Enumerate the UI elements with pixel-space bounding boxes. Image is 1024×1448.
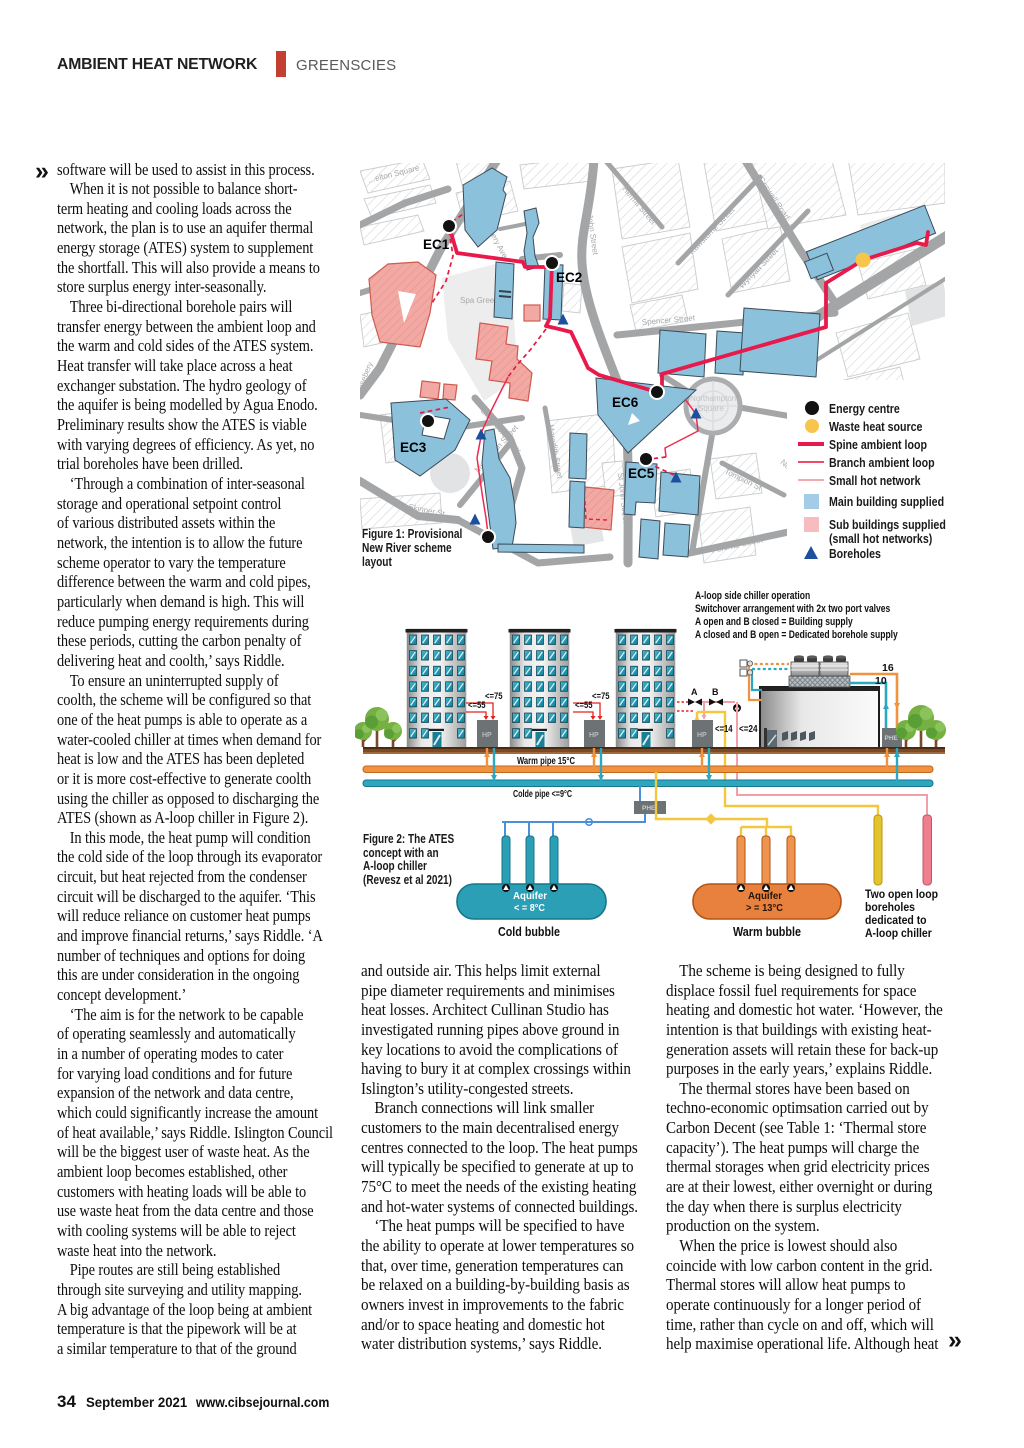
svg-text:> = 13°C: > = 13°C xyxy=(746,903,783,914)
svg-text:PHE: PHE xyxy=(642,805,656,812)
svg-text:EC3: EC3 xyxy=(400,440,427,455)
svg-text:Northampton: Northampton xyxy=(690,394,736,403)
svg-text:Warm pipe 15°C: Warm pipe 15°C xyxy=(517,755,575,767)
svg-text:10: 10 xyxy=(875,675,887,687)
svg-text:B: B xyxy=(712,687,719,697)
svg-text:<=14: <=14 xyxy=(715,723,733,735)
svg-text:< = 8°C: < = 8°C xyxy=(514,903,545,914)
svg-text:HP: HP xyxy=(482,732,492,739)
svg-text:PHE: PHE xyxy=(885,735,899,742)
svg-text:HP: HP xyxy=(697,732,707,739)
svg-text:<=75: <=75 xyxy=(592,691,610,702)
svg-text:EC6: EC6 xyxy=(612,395,639,410)
svg-text:16: 16 xyxy=(882,662,894,674)
svg-text:Colde pipe <=9°C: Colde pipe <=9°C xyxy=(513,788,572,800)
svg-text:EC2: EC2 xyxy=(556,270,582,285)
svg-text:A: A xyxy=(691,687,698,697)
svg-text:<=75: <=75 xyxy=(485,691,503,702)
svg-text:Square: Square xyxy=(698,404,724,413)
svg-text:<=55: <=55 xyxy=(575,700,593,711)
svg-text:EC1: EC1 xyxy=(423,237,450,252)
svg-text:Cold bubble: Cold bubble xyxy=(498,925,560,939)
svg-text:EC5: EC5 xyxy=(628,466,655,481)
svg-text:<=24: <=24 xyxy=(739,723,758,735)
svg-text:HP: HP xyxy=(589,732,599,739)
svg-text:<=55: <=55 xyxy=(468,700,486,711)
svg-text:Warm bubble: Warm bubble xyxy=(733,925,801,939)
svg-text:Spa Green: Spa Green xyxy=(460,296,499,305)
